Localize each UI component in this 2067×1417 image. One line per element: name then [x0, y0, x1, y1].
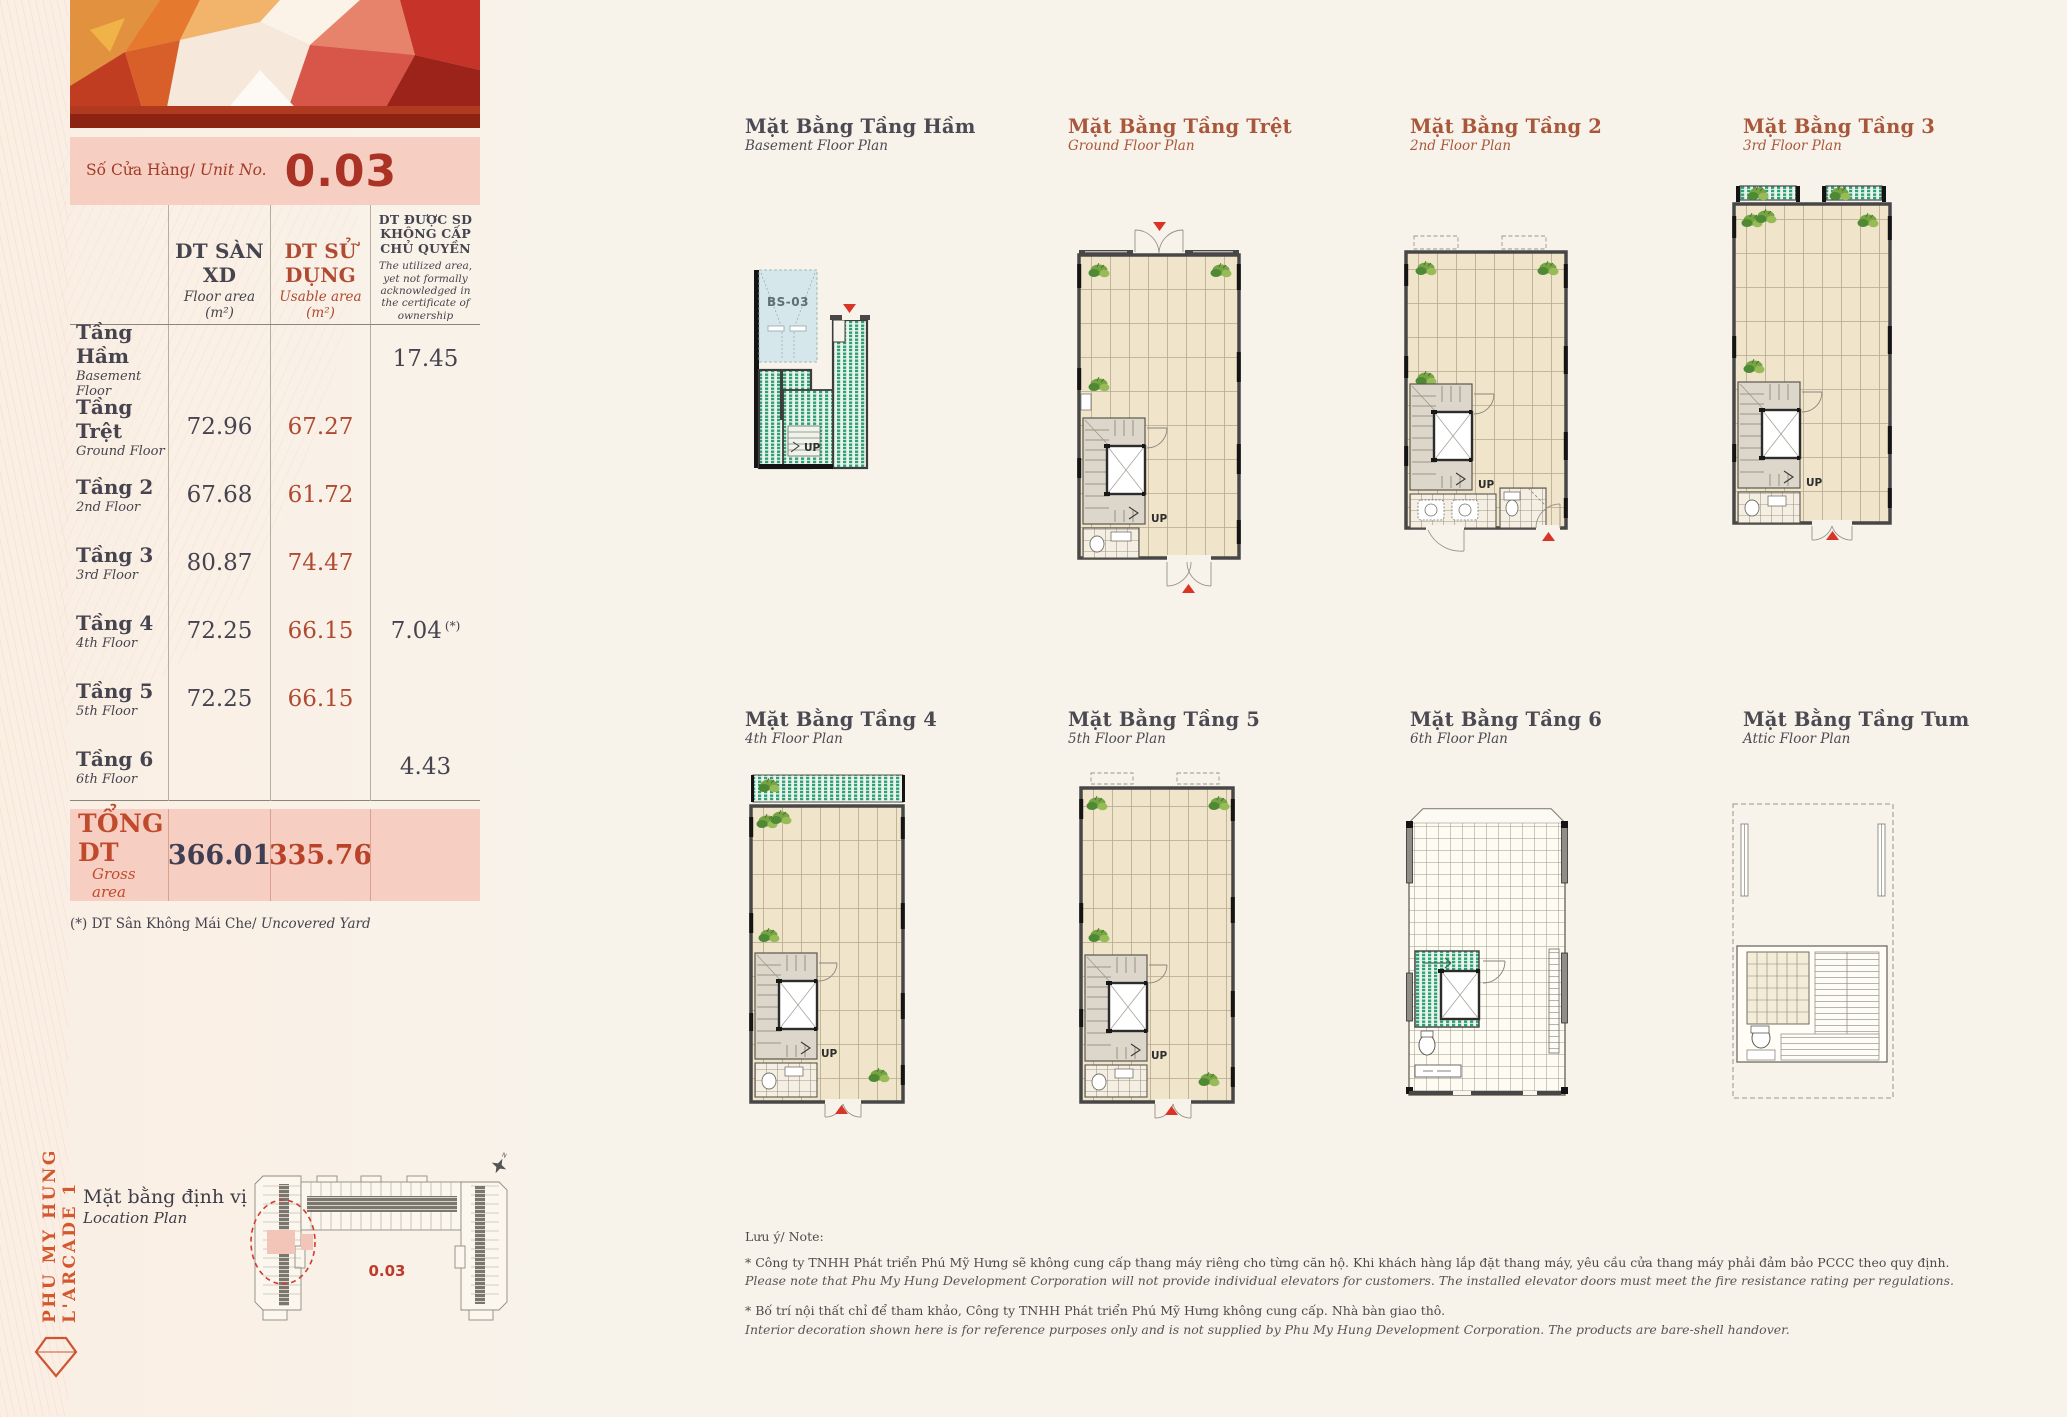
table-row-floor3-label: Tầng 3 3rd Floor [70, 529, 168, 597]
bathroom [755, 1063, 817, 1097]
cell-floor-area [168, 733, 270, 801]
unit-label-vi: Số Cửa Hàng/ [86, 161, 195, 179]
cell-uncertified: 7.04(*) [370, 597, 480, 665]
hero-crystal-image [70, 0, 480, 128]
location-plan-drawing: 0.03 N [237, 1150, 522, 1335]
cell-usable-area: 74.47 [270, 529, 370, 597]
unit-number-value: 0.03 [285, 146, 398, 197]
location-plan-title: Mặt bằng định vị Location Plan [83, 1186, 247, 1227]
note-vi: * Bố trí nội thất chỉ để tham khảo, Công… [745, 1302, 2045, 1320]
note-en: Please note that Phu My Hung Development… [745, 1272, 2045, 1290]
notes-heading: Lưu ý/ Note: [745, 1228, 2045, 1246]
cell-uncertified [370, 529, 480, 597]
cell-usable-area: 61.72 [270, 461, 370, 529]
cell-uncertified [370, 665, 480, 733]
cell-uncertified [370, 461, 480, 529]
up-label: UP [821, 1048, 838, 1060]
elevator [1441, 971, 1479, 1019]
total-uncertified-empty [370, 809, 480, 901]
plan-title-floor2: Mặt Bằng Tầng 2 2nd Floor Plan [1410, 115, 1650, 154]
bathroom [1738, 492, 1800, 523]
header-uncertified-area: DT ĐƯỢC SD KHÔNG CẤP CHỦ QUYỀN The utili… [370, 205, 480, 324]
floorplan-ground: UP [1077, 222, 1241, 593]
notes-section: Lưu ý/ Note: * Công ty TNHH Phát triển P… [745, 1228, 2045, 1339]
total-label: TỔNG DT Gross area [70, 809, 168, 901]
stair-core [1083, 418, 1145, 524]
floorplan-floor2: UP [1404, 236, 1568, 551]
right-wing-stairs [475, 1186, 485, 1304]
cell-floor-area: 67.68 [168, 461, 270, 529]
unit-number-label: Số Cửa Hàng/ Unit No. [86, 162, 267, 179]
top-bar-stairs [307, 1196, 457, 1212]
stair-core [755, 953, 817, 1059]
cell-uncertified: 17.45 [370, 325, 480, 393]
svg-text:N: N [501, 1152, 508, 1160]
stair-core [1410, 384, 1472, 490]
cell-floor-area [168, 325, 270, 393]
table-footnote: (*) DT Sân Không Mái Che/ Uncovered Yard [70, 916, 371, 932]
note-en: Interior decoration shown here is for re… [745, 1321, 2045, 1339]
highlighted-unit [267, 1230, 295, 1254]
stair-core [1738, 382, 1800, 488]
table-row-basement-label: Tầng Hầm Basement Floor [70, 325, 168, 393]
planter-strip [1736, 186, 1886, 202]
skylight [1747, 952, 1809, 1024]
cell-usable-area: 67.27 [270, 393, 370, 461]
cell-floor-area: 80.87 [168, 529, 270, 597]
floorplan-basement: BS-03 UP [754, 270, 870, 469]
cell-floor-area: 72.96 [168, 393, 270, 461]
floorplan-floor5: UP [1079, 773, 1235, 1118]
diamond-logo-icon [33, 1332, 79, 1380]
basement-space-label: BS-03 [767, 295, 809, 309]
location-unit-number: 0.03 [368, 1262, 405, 1280]
table-row-floor6-label: Tầng 6 6th Floor [70, 733, 168, 801]
entry-marker [1826, 531, 1839, 540]
entry-marker [1153, 222, 1166, 231]
total-usable-area: 335.76 [270, 809, 370, 901]
header-empty-cell [70, 205, 168, 324]
floorplan-floor6 [1406, 809, 1568, 1095]
parking-space [759, 270, 817, 362]
bathroom [1083, 528, 1139, 558]
unit-label-en: Unit No. [200, 161, 267, 179]
cell-usable-area: 66.15 [270, 665, 370, 733]
table-row-ground-label: Tầng Trệt Ground Floor [70, 393, 168, 461]
entry-marker [1182, 584, 1195, 593]
table-row-floor4-label: Tầng 4 4th Floor [70, 597, 168, 665]
header-floor-area: DT SÀN XD Floor area (m²) [168, 205, 270, 324]
stair-core [1085, 955, 1147, 1061]
plan-title-attic: Mặt Bằng Tầng Tum Attic Floor Plan [1743, 708, 1983, 747]
entry-marker [1542, 532, 1555, 541]
cell-usable-area [270, 733, 370, 801]
floorplans-canvas: BS-03 UP [700, 100, 2000, 1200]
table-row-floor5-label: Tầng 5 5th Floor [70, 665, 168, 733]
plan-title-floor6: Mặt Bằng Tầng 6 6th Floor Plan [1410, 708, 1650, 747]
louver-strip [1549, 949, 1559, 1053]
bathroom [1085, 1065, 1147, 1097]
brochure-page: Số Cửa Hàng/ Unit No. 0.03 DT SÀN XD Flo… [0, 0, 2067, 1417]
brand-vertical-text: PHU MY HUNG L'ARCADE 1 [40, 1095, 66, 1323]
cell-usable-area: 66.15 [270, 597, 370, 665]
highlighted-unit-ext [301, 1234, 313, 1250]
unit-number-bar: Số Cửa Hàng/ Unit No. 0.03 [70, 137, 480, 205]
cell-uncertified: 4.43 [370, 733, 480, 801]
plan-title-floor5: Mặt Bằng Tầng 5 5th Floor Plan [1068, 708, 1308, 747]
plan-title-basement: Mặt Bằng Tầng Hầm Basement Floor Plan [745, 115, 985, 154]
floorplan-floor4: UP [749, 775, 905, 1117]
up-label: UP [1151, 1050, 1168, 1062]
entry-marker [843, 304, 856, 313]
total-floor-area: 366.01 [168, 809, 270, 901]
north-arrow-icon: N [488, 1150, 512, 1177]
total-row: TỔNG DT Gross area 366.01 335.76 [70, 809, 480, 901]
table-row-floor2-label: Tầng 2 2nd Floor [70, 461, 168, 529]
up-label: UP [804, 442, 821, 454]
bathroom [1500, 488, 1546, 528]
uncovered-yard [751, 775, 905, 802]
plan-title-floor4: Mặt Bằng Tầng 4 4th Floor Plan [745, 708, 985, 747]
cell-floor-area: 72.25 [168, 665, 270, 733]
up-label: UP [1151, 513, 1168, 525]
garage-room [1410, 494, 1496, 528]
cell-floor-area: 72.25 [168, 597, 270, 665]
up-label: UP [1806, 477, 1823, 489]
plan-title-ground: Mặt Bằng Tầng Trệt Ground Floor Plan [1068, 115, 1308, 154]
up-label: UP [1478, 479, 1495, 491]
cell-usable-area [270, 325, 370, 393]
area-table-body: Tầng Hầm Basement Floor 17.45 Tầng Trệt … [70, 325, 480, 801]
header-usable-area: DT SỬ DỤNG Usable area (m²) [270, 205, 370, 324]
note-vi: * Công ty TNHH Phát triển Phú Mỹ Hưng sẽ… [745, 1254, 2045, 1272]
plan-title-floor3: Mặt Bằng Tầng 3 3rd Floor Plan [1743, 115, 1983, 154]
area-table-header: DT SÀN XD Floor area (m²) DT SỬ DỤNG Usa… [70, 205, 480, 325]
cell-uncertified [370, 393, 480, 461]
floorplan-floor3: UP [1732, 186, 1892, 540]
footnote-mark: (*) [445, 619, 460, 633]
toilet [1419, 1035, 1435, 1055]
floorplan-attic [1733, 804, 1893, 1098]
